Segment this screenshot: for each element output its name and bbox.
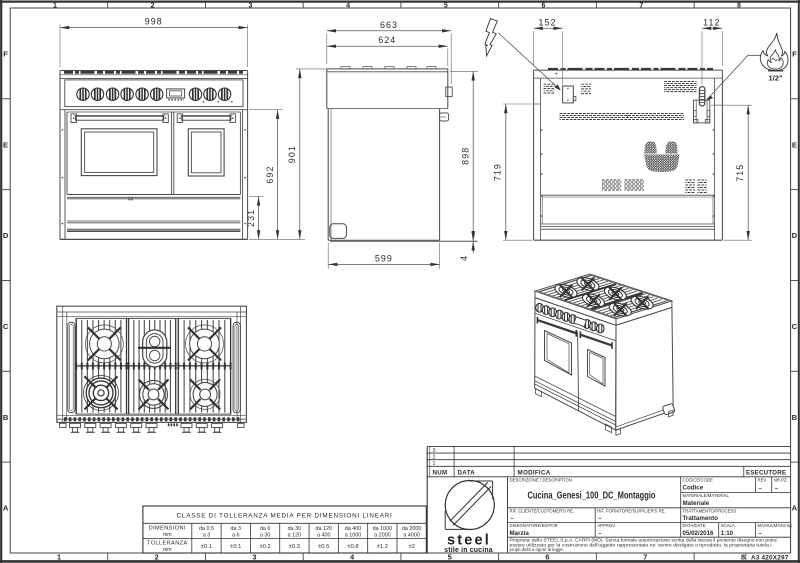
svg-text:da 0.5: da 0.5	[199, 526, 214, 532]
svg-text:a 4000: a 4000	[403, 532, 420, 538]
svg-text:a 3: a 3	[203, 532, 211, 538]
svg-text:a 6: a 6	[232, 532, 240, 538]
svg-text:F: F	[792, 49, 797, 58]
svg-text:692: 692	[265, 165, 275, 183]
svg-text:±0.1: ±0.1	[230, 544, 241, 550]
svg-text:Codice: Codice	[683, 485, 704, 492]
svg-text:898: 898	[460, 147, 470, 165]
svg-text:a 400: a 400	[317, 532, 331, 538]
svg-text:152: 152	[538, 17, 556, 27]
svg-text:05/02/2016: 05/02/2016	[683, 530, 715, 537]
svg-text:DESCRIZIONE / DESCRIPTION: DESCRIZIONE / DESCRIPTION	[510, 478, 572, 483]
svg-text:A3 420X297: A3 420X297	[751, 554, 789, 561]
svg-text:±1.2: ±1.2	[377, 544, 388, 550]
svg-text:6: 6	[542, 2, 546, 9]
svg-text:1: 1	[433, 461, 436, 467]
svg-text:8: 8	[741, 552, 745, 561]
svg-text:D: D	[3, 231, 9, 240]
svg-text:E: E	[792, 140, 797, 149]
svg-text:Trattamento: Trattamento	[683, 515, 719, 522]
svg-text:4: 4	[459, 256, 469, 261]
svg-text:Cucina_Genesi_100_DC_Montaggio: Cucina_Genesi_100_DC_Montaggio	[528, 491, 656, 502]
svg-text:TOLLERANZA: TOLLERANZA	[147, 541, 188, 547]
svg-text:Marzia: Marzia	[510, 530, 530, 537]
svg-text:TRATTAMENTO/PROCESS: TRATTAMENTO/PROCESS	[683, 508, 737, 513]
svg-text:901: 901	[287, 145, 297, 163]
svg-text:MATERIALE/MATERIAL: MATERIALE/MATERIAL	[683, 493, 730, 498]
svg-text:B: B	[3, 413, 9, 422]
svg-text:DATA/DATE: DATA/DATE	[683, 523, 706, 528]
svg-text:1:10: 1:10	[721, 530, 734, 537]
svg-text:998: 998	[145, 17, 163, 27]
svg-text:CODICE/CODE: CODICE/CODE	[683, 478, 713, 483]
svg-text:±0.2: ±0.2	[259, 544, 270, 550]
svg-text:±0.5: ±0.5	[318, 544, 329, 550]
svg-text:A: A	[792, 504, 798, 513]
svg-text:MODIFICA: MODIFICA	[518, 469, 551, 476]
svg-text:SCALA: SCALA	[721, 523, 735, 528]
svg-text:da 30: da 30	[288, 526, 302, 532]
svg-text:DIMENSIONI: DIMENSIONI	[149, 526, 186, 532]
svg-text:3: 3	[248, 2, 252, 9]
svg-text:da 1000: da 1000	[373, 526, 393, 532]
svg-text:NR.PZ.: NR.PZ.	[774, 478, 788, 483]
svg-text:624: 624	[378, 35, 396, 45]
svg-text:A: A	[3, 504, 9, 513]
svg-text:APPROV.: APPROV.	[597, 523, 616, 528]
svg-text:8: 8	[737, 2, 741, 9]
svg-text:3: 3	[433, 448, 436, 454]
svg-text:2: 2	[151, 2, 155, 9]
svg-text:7: 7	[639, 2, 643, 9]
svg-text:719: 719	[492, 163, 502, 181]
svg-text:a 2000: a 2000	[374, 532, 391, 538]
svg-text:NUM: NUM	[433, 469, 448, 476]
svg-text:da 400: da 400	[345, 526, 362, 532]
svg-text:231: 231	[246, 209, 256, 227]
svg-text:a 1000: a 1000	[345, 532, 362, 538]
svg-text:±2: ±2	[408, 544, 414, 550]
svg-text:da 120: da 120	[315, 526, 332, 532]
svg-text:715: 715	[735, 164, 745, 182]
svg-text:DISEGNATORE/EDITOR: DISEGNATORE/EDITOR	[510, 523, 558, 528]
svg-text:599: 599	[375, 253, 393, 263]
svg-text:da 3: da 3	[231, 526, 242, 532]
svg-text:MASSA/MASS kg: MASSA/MASS kg	[758, 523, 793, 528]
svg-text:a 30: a 30	[260, 532, 271, 538]
svg-text:C: C	[792, 322, 798, 331]
svg-text:steel: steel	[447, 533, 491, 549]
svg-text:±0.1: ±0.1	[201, 544, 212, 550]
svg-text:F: F	[3, 49, 8, 58]
svg-text:2: 2	[154, 552, 158, 561]
svg-text:D: D	[792, 231, 798, 240]
svg-text:da 6: da 6	[260, 526, 271, 532]
svg-text:3: 3	[252, 552, 256, 561]
svg-text:5: 5	[444, 2, 448, 9]
svg-text:±0.3: ±0.3	[289, 544, 300, 550]
svg-text:Materiale: Materiale	[683, 500, 710, 507]
svg-text:stile in cucina: stile in cucina	[444, 547, 493, 554]
svg-text:da 2000: da 2000	[402, 526, 422, 532]
svg-text:CLASSE DI TOLLERANZA MEDIA PER: CLASSE DI TOLLERANZA MEDIA PER DIMENSION…	[177, 512, 393, 519]
svg-text:mm: mm	[163, 547, 172, 553]
svg-text:REV.: REV.	[758, 478, 768, 483]
svg-text:4: 4	[346, 2, 350, 9]
svg-text:DATA: DATA	[458, 469, 476, 476]
svg-text:RIF. CLIENTE/CUSTOMER'S RE.: RIF. CLIENTE/CUSTOMER'S RE.	[510, 508, 575, 513]
svg-text:6: 6	[545, 552, 549, 561]
svg-text:7: 7	[643, 552, 647, 561]
svg-text:mm: mm	[163, 532, 172, 538]
svg-text:C: C	[3, 322, 9, 331]
svg-text:1/2": 1/2"	[768, 73, 783, 82]
svg-text:a 120: a 120	[288, 532, 302, 538]
svg-text:±0.8: ±0.8	[347, 544, 358, 550]
svg-text:B: B	[792, 413, 798, 422]
svg-text:ESECUTORE: ESECUTORE	[746, 469, 786, 476]
svg-text:2: 2	[433, 454, 436, 460]
svg-text:E: E	[3, 140, 8, 149]
svg-text:112: 112	[703, 17, 720, 27]
svg-text:663: 663	[380, 20, 398, 30]
svg-text:1: 1	[53, 2, 57, 9]
svg-text:propri diritti a rigore di leg: propri diritti a rigore di legge.	[510, 547, 564, 552]
svg-text:RIF. FORNITORE/SUPPLIER'S RE.: RIF. FORNITORE/SUPPLIER'S RE.	[597, 508, 666, 513]
